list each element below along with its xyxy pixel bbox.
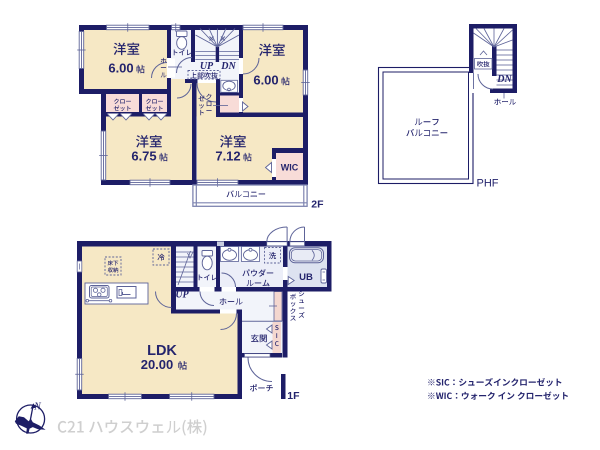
svg-text:帖: 帖: [136, 63, 145, 76]
svg-text:ト: ト: [198, 107, 205, 117]
svg-text:ルーム: ルーム: [246, 278, 270, 289]
svg-text:バルコニー: バルコニー: [226, 189, 266, 200]
svg-text:6.75: 6.75: [131, 149, 156, 164]
svg-text:ー: ー: [206, 105, 213, 115]
svg-text:バルコニー: バルコニー: [406, 127, 448, 139]
svg-text:C: C: [275, 338, 279, 348]
svg-text:ポーチ: ポーチ: [250, 383, 274, 394]
svg-text:6.00: 6.00: [108, 61, 133, 76]
svg-text:1F: 1F: [287, 390, 300, 402]
svg-text:6.00: 6.00: [253, 73, 278, 88]
svg-text:C21 ハウスウェル(株): C21 ハウスウェル(株): [57, 416, 208, 438]
svg-text:UP: UP: [175, 290, 189, 301]
svg-text:PHF: PHF: [477, 178, 499, 190]
svg-text:トイレ: トイレ: [197, 273, 218, 283]
svg-text:玄関: 玄関: [250, 333, 267, 345]
svg-text:DN: DN: [496, 74, 512, 85]
svg-text:洗: 洗: [269, 251, 277, 262]
svg-text:ル: ル: [160, 69, 167, 79]
svg-text:帖: 帖: [243, 151, 252, 164]
svg-text:2F: 2F: [311, 199, 324, 211]
svg-text:UB: UB: [299, 272, 313, 283]
svg-text:※SIC：シューズインクローゼット: ※SIC：シューズインクローゼット: [427, 375, 563, 388]
svg-text:帖: 帖: [281, 75, 290, 88]
svg-text:収納: 収納: [107, 266, 119, 274]
svg-text:N: N: [33, 402, 42, 413]
svg-text:冷: 冷: [157, 252, 165, 263]
svg-text:ゼット: ゼット: [113, 104, 131, 113]
svg-text:ホール: ホール: [494, 97, 517, 108]
svg-text:トイレ: トイレ: [172, 48, 193, 58]
svg-text:吹抜: 吹抜: [477, 59, 491, 69]
svg-text:DN: DN: [220, 61, 236, 72]
svg-text:ス: ス: [290, 313, 297, 323]
svg-text:帖: 帖: [178, 358, 188, 372]
svg-text:洋室: 洋室: [113, 38, 140, 58]
svg-text:※WIC：ウォーク イン クローゼット: ※WIC：ウォーク イン クローゼット: [427, 389, 569, 402]
svg-text:7.12: 7.12: [215, 149, 240, 164]
svg-text:ゼット: ゼット: [145, 104, 163, 113]
svg-text:ズ: ズ: [298, 310, 305, 320]
svg-text:WIC: WIC: [281, 163, 299, 173]
svg-text:帖: 帖: [159, 151, 168, 164]
svg-text:20.00: 20.00: [141, 357, 174, 372]
svg-text:上部吹抜: 上部吹抜: [190, 71, 218, 81]
svg-text:洋室: 洋室: [259, 39, 286, 59]
svg-text:洋室: 洋室: [220, 131, 247, 151]
svg-text:ホール: ホール: [219, 297, 243, 308]
svg-text:洋室: 洋室: [136, 131, 163, 151]
